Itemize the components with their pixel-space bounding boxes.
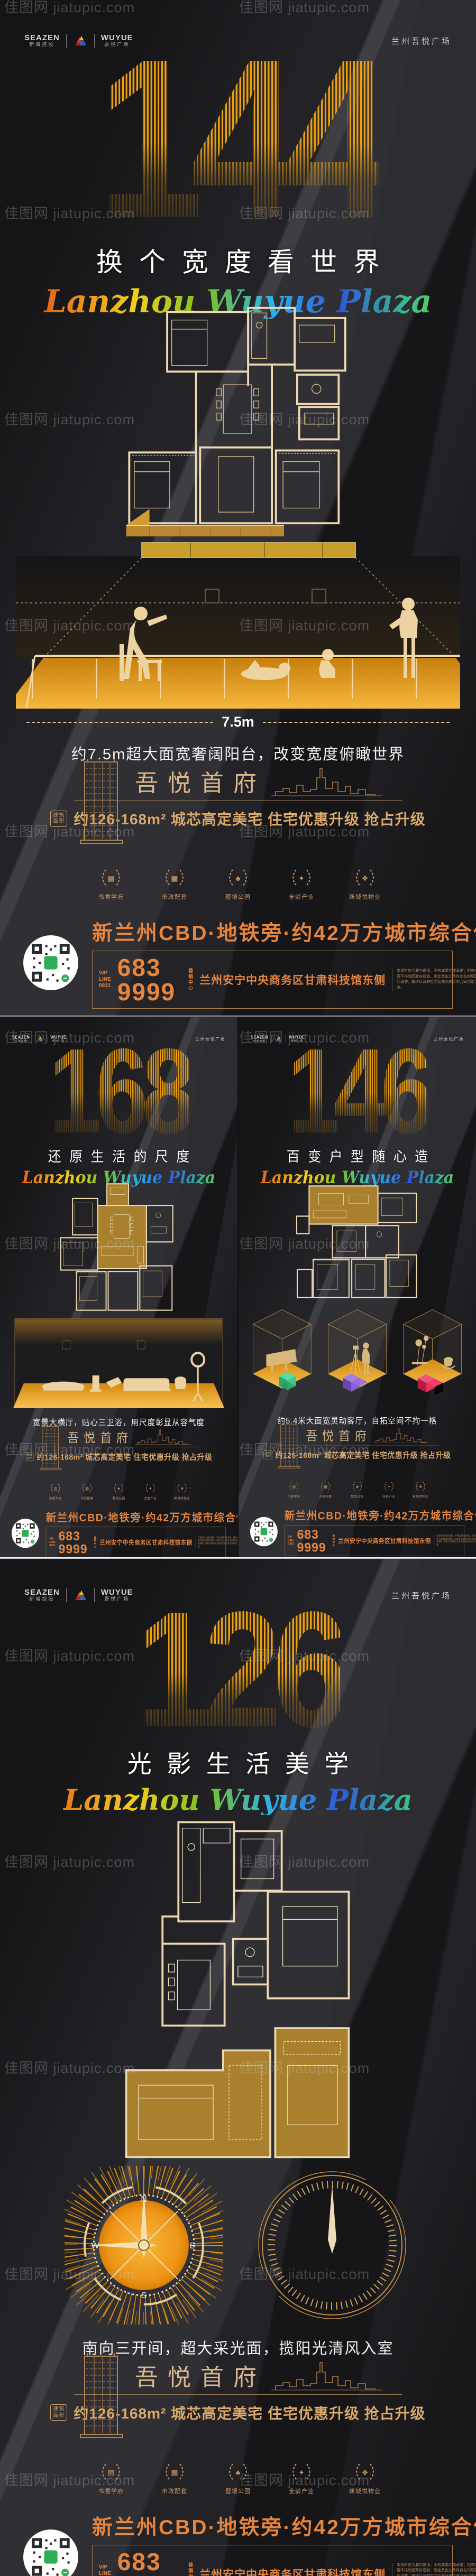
brand-separator bbox=[66, 1588, 67, 1602]
laurel-icon: ✦ bbox=[290, 2463, 313, 2482]
value-icon-property: ❖ 新城悦物业 bbox=[344, 2463, 386, 2495]
value-icon-school: ▤ 书香学府 bbox=[90, 869, 132, 901]
value-icon-property: ❖ 新城悦物业 bbox=[410, 1482, 431, 1499]
banner-headline: 新兰州CBD·地铁旁·约42万方城市综合体 bbox=[92, 917, 453, 946]
big-number: 144 bbox=[97, 55, 379, 223]
area-badge: 建筑 面积 bbox=[50, 2404, 67, 2421]
area-badge: 建筑 面积 bbox=[264, 1450, 272, 1459]
estate-block: 吾悦首府 建筑 面积 约126-168m² 城芯高定美宅 住宅优惠升级 抢占升级 bbox=[239, 1426, 476, 1473]
poster-series-page: SEAZEN 新城控股 WUYUE 吾悦广场 兰州吾悦广场 144 换个宽度看世… bbox=[0, 0, 476, 2576]
laurel-icon: ♣ bbox=[113, 1483, 125, 1493]
contact-banner: 新兰州CBD·地铁旁·约42万方城市综合体 VIP LINE 0931 683 … bbox=[0, 917, 476, 1009]
vip-line-label: VIP LINE 0931 bbox=[288, 1536, 294, 1546]
qr-pattern bbox=[253, 1520, 275, 1543]
brand-logos: SEAZEN 新城控股 WUYUE 吾悦广场 bbox=[24, 1588, 133, 1602]
vip-line-label: VIP LINE 0931 bbox=[99, 970, 111, 989]
skyline-icon bbox=[271, 765, 382, 798]
living-room-scene bbox=[13, 1317, 224, 1409]
building-icon bbox=[79, 2351, 128, 2442]
brand-separator bbox=[66, 34, 67, 48]
qr-pattern bbox=[29, 941, 73, 985]
value-icon-school: ▤ 书香学府 bbox=[45, 1483, 66, 1500]
qr-pattern bbox=[14, 1521, 36, 1545]
banner-box: VIP LINE 0931 683 9999 营销 中心 兰州安宁中央商务区甘肃… bbox=[92, 2545, 453, 2576]
icon-label: 墅境公园 bbox=[347, 1494, 368, 1499]
svg-text:♣: ♣ bbox=[356, 1484, 359, 1489]
balcony-scene bbox=[16, 541, 460, 709]
brand-logos: SEAZEN 新城控股 WUYUE 吾悦广场 bbox=[24, 34, 133, 48]
contact-banner: 新兰州CBD·地铁旁·约42万方城市综合体 VIP LINE 0931 683 … bbox=[0, 2511, 476, 2576]
laurel-icon: ♣ bbox=[352, 1482, 363, 1492]
fine-print: 本资料仅为要约邀请，不构成要约或承诺；相关内容不排除因政府规划、规定及出让条件变… bbox=[434, 1535, 476, 1546]
banner-box: VIP LINE 0931 683 9999 营销 中心 兰州安宁中央商务区甘肃… bbox=[46, 1527, 226, 1557]
value-icon-park: ♣ 墅境公园 bbox=[347, 1482, 368, 1499]
icon-label: 市政配套 bbox=[154, 892, 195, 901]
laurel-icon: ▦ bbox=[163, 2463, 186, 2482]
svg-text:♣: ♣ bbox=[235, 2468, 240, 2477]
brand-logos: SEAZEN 新城控股 WUYUE 吾悦广场 bbox=[251, 1035, 305, 1043]
value-icons-row: ▤ 书香学府 ▦ 市政配套 ♣ 墅境公园 bbox=[239, 1482, 476, 1499]
project-title-right: 兰州吾悦广场 bbox=[391, 1590, 452, 1601]
laurel-icon: ❖ bbox=[415, 1482, 426, 1492]
poster-168-box: SEAZEN 新城控股 WUYUE 吾悦广场 兰州吾悦广场 168 还原生活的尺… bbox=[0, 1017, 237, 1557]
laurel-icon: ▤ bbox=[288, 1482, 300, 1492]
brand-logos: SEAZEN 新城控股 WUYUE 吾悦广场 bbox=[12, 1035, 67, 1043]
address-text: 兰州安宁中央商务区甘肃科技馆东侧 bbox=[199, 972, 386, 988]
script-subtitle: Lanzhou Wuyue Plaza bbox=[0, 1785, 476, 1815]
measure-label: 7.5m bbox=[222, 714, 254, 730]
banner-headline: 新兰州CBD·地铁旁·约42万方城市综合体 bbox=[92, 2511, 453, 2541]
floorplan-144 bbox=[114, 305, 362, 537]
project-name: 吾悦首府 bbox=[125, 764, 266, 798]
value-icon-park: ♣ 墅境公园 bbox=[217, 2463, 259, 2495]
banner-headline: 新兰州CBD·地铁旁·约42万方城市综合体 bbox=[46, 1509, 226, 1524]
svg-text:▦: ▦ bbox=[85, 1486, 89, 1491]
poster-footer: 吾悦首府 建筑 面积 约126-168m² 城芯高定美宅 住宅优惠升级 抢占升级… bbox=[0, 2358, 476, 2576]
value-icons-row: ▤ 书香学府 ▦ 市政配套 ♣ 墅境公园 bbox=[0, 869, 476, 901]
poster-header: SEAZEN 新城控股 WUYUE 吾悦广场 兰州吾悦广场 bbox=[0, 1588, 476, 1602]
laurel-icon: ▤ bbox=[99, 869, 123, 888]
poster-144: SEAZEN 新城控股 WUYUE 吾悦广场 兰州吾悦广场 144 换个宽度看世… bbox=[0, 0, 476, 1016]
svg-text:S: S bbox=[141, 2291, 147, 2300]
address-label: 营销 中心 bbox=[333, 1535, 335, 1547]
big-number: 146 bbox=[287, 1046, 427, 1136]
poster-headline: 光影生活美学 bbox=[0, 1745, 476, 1780]
seazen-logo: SEAZEN 新城控股 bbox=[24, 1588, 60, 1602]
svg-text:W: W bbox=[91, 2242, 99, 2250]
qr-code bbox=[250, 1517, 278, 1546]
laurel-icon: ▤ bbox=[50, 1483, 61, 1493]
clock-dial bbox=[253, 2166, 411, 2324]
cube-piano bbox=[253, 1309, 311, 1390]
icon-label: 全龄产业 bbox=[140, 1496, 161, 1501]
poster-header: SEAZEN 新城控股 WUYUE 吾悦广场 兰州吾悦广场 bbox=[0, 34, 476, 48]
poster-caption: 约7.5m超大面宽奢阔阳台，改变宽度俯瞰世界 bbox=[0, 742, 476, 764]
laurel-icon: ▤ bbox=[99, 2463, 123, 2482]
svg-text:✦: ✦ bbox=[298, 2468, 305, 2477]
value-icon-municipal: ▦ 市政配套 bbox=[77, 1483, 97, 1500]
address-label: 营销 中心 bbox=[188, 2562, 193, 2576]
laurel-icon: ✦ bbox=[290, 869, 313, 888]
cube-photographer bbox=[328, 1309, 387, 1391]
laurel-icon: ✦ bbox=[144, 1483, 156, 1493]
building-icon bbox=[40, 1424, 64, 1472]
svg-text:❖: ❖ bbox=[362, 2468, 369, 2477]
value-icons-row: ▤ 书香学府 ▦ 市政配套 ♣ 墅境公园 bbox=[0, 2463, 476, 2495]
value-icon-park: ♣ 墅境公园 bbox=[217, 869, 259, 901]
project-name: 吾悦首府 bbox=[62, 1428, 133, 1446]
svg-text:▦: ▦ bbox=[171, 874, 178, 882]
icon-label: 市政配套 bbox=[315, 1494, 336, 1499]
big-number: 168 bbox=[49, 1046, 189, 1136]
laurel-icon: ❖ bbox=[176, 1483, 188, 1493]
icon-label: 全龄产业 bbox=[379, 1494, 399, 1499]
banner-headline: 新兰州CBD·地铁旁·约42万方城市综合体 bbox=[285, 1507, 464, 1523]
poster-caption: 约5.4米大面宽灵动客厅，自拓空间不拘一格 bbox=[239, 1414, 476, 1426]
value-icon-school: ▤ 书香学府 bbox=[283, 1482, 304, 1499]
icon-label: 墅境公园 bbox=[108, 1496, 129, 1501]
laurel-icon: ❖ bbox=[353, 869, 377, 888]
poster-header: SEAZEN 新城控股 WUYUE 吾悦广场 兰州吾悦广场 bbox=[0, 1035, 237, 1043]
building-icon bbox=[278, 1422, 303, 1470]
laurel-icon: ▦ bbox=[163, 869, 186, 888]
project-name: 吾悦首府 bbox=[301, 1426, 371, 1444]
banner-box: VIP LINE 0931 683 9999 营销 中心 兰州安宁中央商务区甘肃… bbox=[92, 951, 453, 1009]
wuyue-logo: WUYUE 吾悦广场 bbox=[101, 34, 133, 47]
wuyue-logo: WUYUE 吾悦广场 bbox=[101, 1588, 133, 1602]
svg-text:▤: ▤ bbox=[292, 1484, 296, 1489]
floorplan-126 bbox=[118, 1817, 358, 2160]
vip-line-label: VIP LINE 0931 bbox=[49, 1537, 55, 1547]
svg-text:▦: ▦ bbox=[171, 2468, 178, 2477]
laurel-icon: ♣ bbox=[226, 869, 250, 888]
value-icon-school: ▤ 书香学府 bbox=[90, 2463, 132, 2495]
brand-separator bbox=[94, 34, 95, 48]
phone-number: 683 9999 bbox=[297, 1528, 326, 1554]
floorplan-168 bbox=[57, 1182, 180, 1314]
address-text: 兰州安宁中央商务区甘肃科技馆东侧 bbox=[199, 2566, 386, 2576]
phone-number: 683 9999 bbox=[59, 1529, 88, 1555]
estate-block: 吾悦首府 建筑 面积 约126-168m² 城芯高定美宅 住宅优惠升级 抢占升级 bbox=[0, 764, 476, 853]
poster-168: SEAZEN 新城控股 WUYUE 吾悦广场 兰州吾悦广场 168 还原生活的尺… bbox=[0, 1017, 237, 1557]
svg-text:♣: ♣ bbox=[117, 1486, 120, 1491]
laurel-icon: ❖ bbox=[353, 2463, 377, 2482]
svg-text:▤: ▤ bbox=[107, 2468, 114, 2477]
seazen-logo: SEAZEN 新城控股 bbox=[24, 34, 60, 47]
contact-banner: 新兰州CBD·地铁旁·约42万方城市综合体 VIP LINE 0931 683 … bbox=[0, 1509, 237, 1557]
icon-label: 市政配套 bbox=[77, 1496, 97, 1501]
address-label: 营销 中心 bbox=[188, 968, 193, 991]
contact-banner: 新兰州CBD·地铁旁·约42万方城市综合体 VIP LINE 0931 683 … bbox=[239, 1507, 476, 1556]
value-icons-row: ▤ 书香学府 ▦ 市政配套 ♣ 墅境公园 bbox=[0, 1483, 237, 1500]
poster-146: SEAZEN 新城控股 WUYUE 吾悦广场 兰州吾悦广场 146 百变户型随心… bbox=[239, 1017, 476, 1557]
qr-code bbox=[12, 1519, 39, 1548]
icon-label: 全龄产业 bbox=[281, 892, 322, 901]
poster-footer: 吾悦首府 建筑 面积 约126-168m² 城芯高定美宅 住宅优惠升级 抢占升级… bbox=[239, 1426, 476, 1557]
poster-caption: 宽景大横厅，贴心三卫浴，用尺度彰显从容气度 bbox=[0, 1416, 237, 1427]
estate-block: 吾悦首府 建筑 面积 约126-168m² 城芯高定美宅 住宅优惠升级 抢占升级 bbox=[0, 1428, 237, 1475]
seazen-logo: SEAZEN 新城控股 bbox=[12, 1035, 30, 1042]
vip-line-label: VIP LINE 0931 bbox=[99, 2564, 111, 2576]
icon-label: 新城悦物业 bbox=[172, 1496, 193, 1501]
area-badge: 建筑 面积 bbox=[25, 1452, 34, 1461]
project-title-right: 兰州吾悦广场 bbox=[195, 1036, 225, 1041]
project-name: 吾悦首府 bbox=[125, 2358, 266, 2392]
value-icon-park: ♣ 墅境公园 bbox=[108, 1483, 129, 1500]
value-icon-industry: ✦ 全龄产业 bbox=[281, 2463, 322, 2495]
qr-code bbox=[23, 935, 78, 990]
svg-text:E: E bbox=[190, 2242, 196, 2250]
fine-print: 本资料仅为要约邀请，不构成要约或承诺；相关内容不排除因政府规划、规定及出让条件变… bbox=[392, 2563, 476, 2576]
svg-text:♣: ♣ bbox=[235, 874, 240, 882]
icon-label: 墅境公园 bbox=[217, 892, 259, 901]
poster-126: SEAZEN 新城控股 WUYUE 吾悦广场 兰州吾悦广场 126 光影生活美学… bbox=[0, 1559, 476, 2576]
value-icon-municipal: ▦ 市政配套 bbox=[154, 869, 195, 901]
address-text: 兰州安宁中央商务区甘肃科技馆东侧 bbox=[99, 1538, 193, 1547]
banner-box: VIP LINE 0931 683 9999 营销 中心 兰州安宁中央商务区甘肃… bbox=[285, 1525, 464, 1556]
svg-text:▤: ▤ bbox=[107, 874, 114, 882]
laurel-icon: ▦ bbox=[320, 1482, 332, 1492]
skyline-icon bbox=[374, 1427, 429, 1444]
poster-headline: 百变户型随心造 bbox=[239, 1145, 476, 1165]
icon-label: 全龄产业 bbox=[281, 2487, 322, 2495]
qr-code bbox=[23, 2529, 78, 2576]
svg-text:✦: ✦ bbox=[387, 1484, 390, 1489]
svg-text:✦: ✦ bbox=[298, 874, 305, 882]
svg-text:✦: ✦ bbox=[149, 1486, 152, 1491]
svg-text:▦: ▦ bbox=[324, 1484, 327, 1489]
icon-label: 新城悦物业 bbox=[410, 1494, 431, 1499]
project-title-right: 兰州吾悦广场 bbox=[434, 1036, 464, 1041]
phone-number: 683 9999 bbox=[117, 2550, 176, 2576]
magic-cubes-scene bbox=[248, 1307, 466, 1408]
cube-toys bbox=[404, 1309, 462, 1395]
icon-label: 书香学府 bbox=[45, 1496, 66, 1501]
address-label: 营销 中心 bbox=[94, 1536, 96, 1548]
value-icon-property: ❖ 新城悦物业 bbox=[344, 869, 386, 901]
poster-row-2: SEAZEN 新城控股 WUYUE 吾悦广场 兰州吾悦广场 168 还原生活的尺… bbox=[0, 1017, 476, 1557]
compass-clock-row: N S W E bbox=[0, 2166, 476, 2324]
poster-146-box: SEAZEN 新城控股 WUYUE 吾悦广场 兰州吾悦广场 146 百变户型随心… bbox=[239, 1017, 476, 1557]
svg-text:❖: ❖ bbox=[362, 874, 369, 882]
building-icon bbox=[79, 757, 128, 848]
icon-label: 市政配套 bbox=[154, 2487, 195, 2495]
svg-text:▤: ▤ bbox=[53, 1486, 57, 1491]
value-icon-property: ❖ 新城悦物业 bbox=[172, 1483, 193, 1500]
value-icon-industry: ✦ 全龄产业 bbox=[379, 1482, 399, 1499]
poster-headline: 还原生活的尺度 bbox=[0, 1145, 237, 1165]
big-number: 126 bbox=[136, 1609, 341, 1731]
wuyue-logo: WUYUE 吾悦广场 bbox=[289, 1035, 305, 1042]
value-icon-municipal: ▦ 市政配套 bbox=[154, 2463, 195, 2495]
laurel-icon: ♣ bbox=[226, 2463, 250, 2482]
laurel-icon: ▦ bbox=[81, 1483, 93, 1493]
sun-compass: N S W E bbox=[65, 2166, 223, 2324]
skyline-icon bbox=[271, 2359, 382, 2392]
poster-header: SEAZEN 新城控股 WUYUE 吾悦广场 兰州吾悦广场 bbox=[239, 1035, 476, 1043]
seazen-logo: SEAZEN 新城控股 bbox=[251, 1035, 268, 1042]
poster-headline: 换个宽度看世界 bbox=[0, 241, 476, 279]
phone-number: 683 9999 bbox=[117, 955, 176, 1004]
estate-block: 吾悦首府 建筑 面积 约126-168m² 城芯高定美宅 住宅优惠升级 抢占升级 bbox=[0, 2358, 476, 2447]
poster-caption: 南向三开间，超大采光面，揽阳光清风入室 bbox=[0, 2336, 476, 2358]
area-badge: 建筑 面积 bbox=[50, 811, 67, 827]
wuyue-triangle-logo bbox=[73, 34, 88, 48]
poster-footer: 吾悦首府 建筑 面积 约126-168m² 城芯高定美宅 住宅优惠升级 抢占升级… bbox=[0, 764, 476, 1016]
wuyue-triangle-logo bbox=[275, 1035, 282, 1043]
svg-text:N: N bbox=[141, 2195, 147, 2204]
brand-separator bbox=[94, 1588, 95, 1602]
address-text: 兰州安宁中央商务区甘肃科技馆东侧 bbox=[338, 1537, 431, 1545]
value-icon-industry: ✦ 全龄产业 bbox=[140, 1483, 161, 1500]
icon-label: 新城悦物业 bbox=[344, 892, 386, 901]
value-icon-municipal: ▦ 市政配套 bbox=[315, 1482, 336, 1499]
icon-label: 书香学府 bbox=[90, 2487, 132, 2495]
icon-label: 书香学府 bbox=[90, 892, 132, 901]
fine-print: 本资料仅为要约邀请，不构成要约或承诺；相关内容不排除因政府规划、规定及出让条件变… bbox=[392, 969, 476, 991]
icon-label: 新城悦物业 bbox=[344, 2487, 386, 2495]
wuyue-logo: WUYUE 吾悦广场 bbox=[50, 1035, 66, 1042]
floorplan-146 bbox=[294, 1182, 420, 1303]
wuyue-triangle-logo bbox=[73, 1588, 88, 1602]
wuyue-triangle-logo bbox=[36, 1035, 44, 1043]
project-title-right: 兰州吾悦广场 bbox=[391, 35, 452, 47]
width-measure: 7.5m bbox=[26, 714, 450, 730]
value-icon-industry: ✦ 全龄产业 bbox=[281, 869, 322, 901]
icon-label: 墅境公园 bbox=[217, 2487, 259, 2495]
qr-pattern bbox=[29, 2535, 73, 2576]
laurel-icon: ✦ bbox=[383, 1482, 395, 1492]
skyline-icon bbox=[135, 1428, 191, 1446]
icon-label: 书香学府 bbox=[283, 1494, 304, 1499]
svg-text:❖: ❖ bbox=[180, 1486, 184, 1491]
fine-print: 本资料仅为要约邀请，不构成要约或承诺；相关内容不排除因政府规划、规定及出让条件变… bbox=[196, 1537, 237, 1548]
svg-text:❖: ❖ bbox=[419, 1484, 422, 1489]
poster-footer: 吾悦首府 建筑 面积 约126-168m² 城芯高定美宅 住宅优惠升级 抢占升级… bbox=[0, 1428, 237, 1557]
